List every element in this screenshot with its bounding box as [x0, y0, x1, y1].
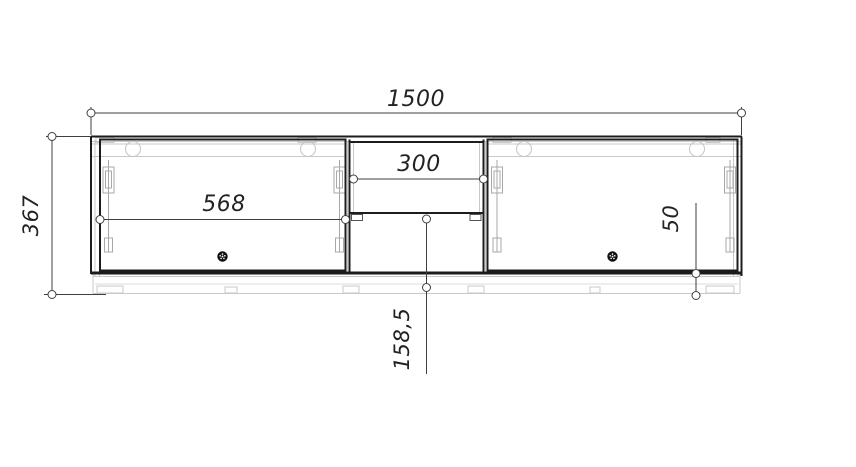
dimension-text-shelf-to-bottom: 158,5 — [390, 308, 414, 371]
hinge-stay-icon — [334, 160, 345, 252]
dimension-endpoint-circle — [738, 109, 746, 117]
foot-block — [97, 286, 123, 293]
right-door — [488, 140, 738, 271]
dimension-endpoint-circle — [692, 270, 700, 278]
dimension-left-door-width: 568 — [96, 192, 350, 224]
dimension-endpoint-circle — [87, 109, 95, 117]
dimension-plinth-height: 50 — [659, 203, 700, 300]
foot-block — [706, 286, 734, 293]
dimension-shelf-to-bottom: 158,5 — [390, 215, 431, 374]
foot-block — [225, 287, 237, 293]
hinge-stay-icon — [103, 160, 114, 252]
dimension-endpoint-circle — [48, 133, 56, 141]
cabinet-elevation-drawing: 1500 367 568 300 158,5 50 — [0, 0, 856, 467]
knob-icon — [217, 251, 227, 261]
foot-block — [468, 286, 484, 293]
hinge-stay-icon — [492, 160, 503, 252]
shelf-support — [352, 215, 363, 221]
knob-icon — [607, 251, 617, 261]
shelf-support — [470, 215, 481, 221]
dimension-endpoint-circle — [423, 215, 431, 223]
right-door-panel — [488, 140, 738, 271]
dimension-text-total-height: 367 — [19, 195, 43, 237]
dimension-text-niche-width: 300 — [397, 152, 441, 177]
dimension-endpoint-circle — [342, 216, 350, 224]
dimension-endpoint-circle — [423, 284, 431, 292]
dimension-endpoint-circle — [350, 175, 358, 183]
dimension-text-left-door-width: 568 — [202, 192, 246, 217]
foot-block — [343, 286, 359, 293]
dimension-endpoint-circle — [692, 292, 700, 300]
dimension-endpoint-circle — [96, 216, 104, 224]
dimension-niche-width: 300 — [350, 152, 488, 183]
dimension-text-total-width: 1500 — [387, 87, 445, 112]
dimension-text-plinth-height: 50 — [659, 205, 683, 233]
dimension-endpoint-circle — [480, 175, 488, 183]
drawing-sheet: 1500 367 568 300 158,5 50 — [0, 0, 856, 467]
foot-block — [590, 287, 600, 293]
dimension-total-width: 1500 — [87, 87, 746, 135]
dimension-endpoint-circle — [48, 291, 56, 299]
